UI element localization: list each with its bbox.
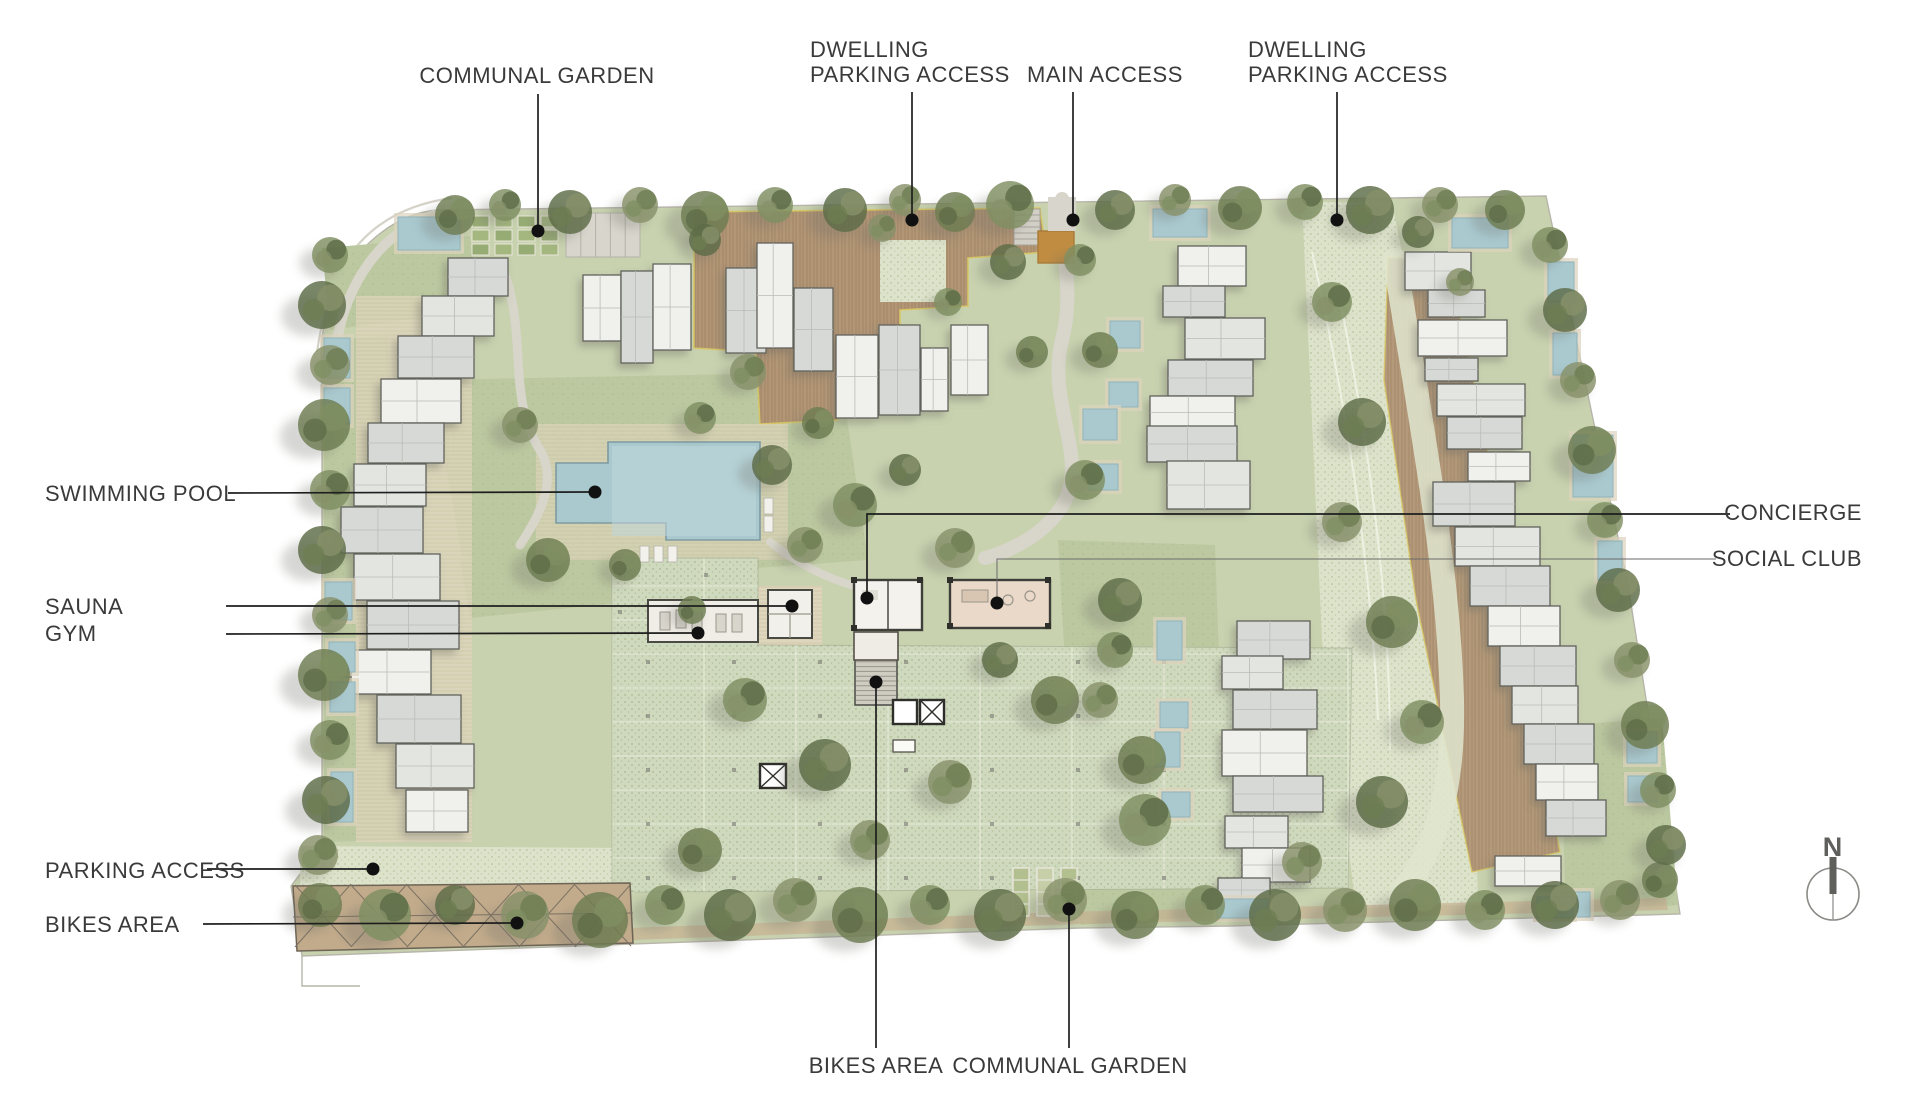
tree-canopy (316, 611, 332, 627)
tree-canopy (1086, 346, 1102, 362)
parking-column (646, 822, 650, 826)
tree-canopy (1222, 203, 1242, 223)
sunbed (654, 546, 663, 562)
tree-canopy (1086, 696, 1102, 712)
leader-line-swimming-pool (228, 492, 590, 493)
tree-canopy (871, 225, 884, 238)
site-plan-page: COMMUNAL GARDENDWELLING PARKING ACCESSMA… (0, 0, 1920, 1099)
tree-canopy (1067, 256, 1081, 270)
tree-canopy (1102, 595, 1122, 615)
north-indicator-graphic (1807, 857, 1859, 920)
tree-canopy (1618, 656, 1634, 672)
tree-canopy (302, 850, 320, 868)
tree-canopy (1101, 646, 1117, 662)
column-post (851, 625, 857, 631)
tree-canopy (1116, 909, 1138, 931)
utility-box (893, 740, 915, 752)
parking-column (1162, 876, 1166, 880)
pool (1157, 621, 1182, 660)
parking-column (704, 573, 708, 577)
tree-canopy (734, 368, 750, 384)
tree-canopy (364, 909, 387, 932)
deck-lawn-square (880, 240, 946, 302)
parking-column (818, 714, 822, 718)
tree-canopy (552, 207, 572, 227)
parking-column (990, 876, 994, 880)
tree-canopy (932, 777, 952, 797)
tree-canopy (892, 196, 906, 210)
parking-column (1076, 660, 1080, 664)
garden-bed (495, 230, 512, 241)
parking-column (646, 714, 650, 718)
tree-canopy (1604, 895, 1622, 913)
parking-column (646, 768, 650, 772)
tree-canopy (1036, 694, 1058, 716)
leader-dot-communal-garden-top (532, 225, 545, 238)
tree-canopy (1591, 516, 1607, 532)
tree-canopy (805, 419, 819, 433)
tree-canopy (1404, 717, 1424, 737)
garden-bed (518, 244, 535, 255)
parking-column (904, 876, 908, 880)
tree-canopy (1600, 585, 1620, 605)
tree-canopy (1626, 719, 1648, 741)
tree-canopy (1124, 814, 1147, 837)
parking-column (646, 660, 650, 664)
leader-dot-gym (692, 627, 705, 640)
parking-column (1076, 768, 1080, 772)
garden-bed (472, 244, 489, 255)
leader-dot-bikes-area-left (511, 917, 524, 930)
column-post (851, 577, 857, 583)
tree-canopy (612, 561, 626, 575)
tree-canopy (761, 201, 777, 217)
pool (1160, 702, 1188, 728)
tree-canopy (1327, 905, 1347, 925)
tree-canopy (303, 299, 325, 321)
parking-column (990, 714, 994, 718)
tree-canopy (1254, 909, 1277, 932)
elevator-core (893, 700, 917, 724)
tree-canopy (892, 466, 906, 480)
parking-column (990, 822, 994, 826)
tree-canopy (827, 205, 847, 225)
site-plan (0, 0, 1920, 1099)
column-post (917, 577, 923, 583)
tree-canopy (303, 669, 326, 692)
tree-canopy (1343, 416, 1365, 438)
tree-canopy (1361, 796, 1384, 819)
parking-column (732, 876, 736, 880)
tree-canopy (687, 414, 701, 428)
social-club-bar (962, 590, 988, 602)
tree-canopy (986, 656, 1002, 672)
pool-highlight (612, 446, 756, 536)
leader-dot-concierge (861, 592, 874, 605)
tree-canopy (756, 460, 774, 478)
north-needle (1830, 857, 1837, 894)
tree-canopy (1650, 840, 1668, 858)
parking-column (818, 660, 822, 664)
leader-dot-swimming-pool (589, 486, 602, 499)
tree-canopy (1426, 201, 1442, 217)
tree-canopy (692, 236, 706, 250)
tree-canopy (578, 913, 603, 938)
tree-canopy (914, 900, 932, 918)
column-post (1045, 577, 1051, 583)
tree-canopy (837, 500, 857, 520)
tree-canopy (1449, 279, 1462, 292)
tree-canopy (1123, 754, 1145, 776)
sunbed (764, 516, 773, 532)
tree-canopy (492, 201, 506, 215)
leader-line-bikes-area-left (203, 923, 512, 924)
tree-canopy (854, 835, 872, 853)
tree-canopy (1564, 376, 1580, 392)
parking-column (1076, 822, 1080, 826)
tree-canopy (682, 845, 702, 865)
tree-canopy (314, 735, 332, 753)
tree-canopy (1371, 616, 1394, 639)
tree-canopy (302, 900, 322, 920)
tree-canopy (316, 251, 332, 267)
parking-column (904, 660, 908, 664)
tree-canopy (1489, 205, 1507, 223)
sunbed (640, 546, 649, 562)
tree-canopy (439, 210, 457, 228)
parking-column (904, 822, 908, 826)
tree-canopy (1162, 196, 1176, 210)
parking-column (818, 822, 822, 826)
sunbed (668, 546, 677, 562)
leader-dot-dwelling-parking-access-left (906, 214, 919, 227)
parking-column (732, 768, 736, 772)
pool (1109, 382, 1138, 407)
column-post (947, 577, 953, 583)
tree-canopy (994, 258, 1010, 274)
tree-canopy (681, 607, 694, 620)
tree-canopy (1069, 475, 1087, 493)
tree-canopy (1286, 857, 1304, 875)
tree-canopy (1469, 905, 1487, 923)
tree-canopy (1019, 348, 1033, 362)
tree-canopy (804, 759, 827, 782)
tree-canopy (1644, 786, 1660, 802)
parking-column (818, 876, 822, 880)
tree-canopy (1573, 444, 1595, 466)
tree-canopy (979, 909, 1002, 932)
concierge-annex (854, 632, 898, 660)
leader-dot-main-access (1067, 214, 1080, 227)
tree-canopy (1536, 241, 1552, 257)
garden-bed (518, 216, 535, 227)
leader-line-gym (226, 633, 693, 634)
leader-dot-social-club (991, 597, 1004, 610)
tree-canopy (727, 695, 747, 715)
garden-bed (472, 230, 489, 241)
leader-dot-dwelling-parking-access-right (1331, 214, 1344, 227)
tree-canopy (991, 199, 1013, 221)
tree-canopy (303, 419, 326, 442)
gym-equipment (732, 614, 742, 632)
tree-canopy (939, 207, 957, 225)
column-post (947, 623, 953, 629)
gym-equipment (716, 614, 726, 632)
tree-canopy (838, 908, 863, 933)
tree-canopy (303, 544, 325, 566)
tree-canopy (777, 895, 797, 915)
tree-canopy (791, 541, 807, 557)
tree-canopy (1646, 876, 1662, 892)
tree-canopy (506, 421, 522, 437)
tree-canopy (1316, 297, 1334, 315)
tree-canopy (1291, 198, 1307, 214)
parking-column (646, 876, 650, 880)
parking-column (732, 822, 736, 826)
tree-canopy (314, 360, 332, 378)
garden-bed (495, 244, 512, 255)
tree-canopy (314, 485, 332, 503)
garden-bed (541, 244, 558, 255)
boundary-step (302, 956, 360, 986)
parking-column (904, 768, 908, 772)
tree-canopy (1536, 899, 1558, 921)
tree-canopy (1547, 305, 1567, 325)
leader-dot-bikes-area-bottom (870, 676, 883, 689)
tree-canopy (439, 900, 457, 918)
parking-column (732, 660, 736, 664)
tree-canopy (1405, 228, 1419, 242)
leader-dot-parking-access (367, 863, 380, 876)
leader-dot-sauna (786, 600, 799, 613)
tree-canopy (649, 900, 667, 918)
tree-canopy (937, 299, 950, 312)
tree-canopy (1394, 899, 1417, 922)
tree-canopy (1326, 517, 1344, 535)
column-post (1045, 623, 1051, 629)
tree-canopy (530, 555, 550, 575)
tree-canopy (626, 201, 642, 217)
parking-column (618, 610, 622, 614)
leader-dot-communal-garden-bottom (1063, 903, 1076, 916)
sunbed (764, 498, 773, 514)
tree-canopy (939, 543, 957, 561)
tree-canopy (307, 794, 329, 816)
tree-canopy (709, 909, 732, 932)
tree-canopy (1099, 205, 1117, 223)
parking-column (990, 768, 994, 772)
pool (1083, 409, 1117, 440)
tree-canopy (1189, 900, 1207, 918)
tree-canopy (1351, 204, 1373, 226)
